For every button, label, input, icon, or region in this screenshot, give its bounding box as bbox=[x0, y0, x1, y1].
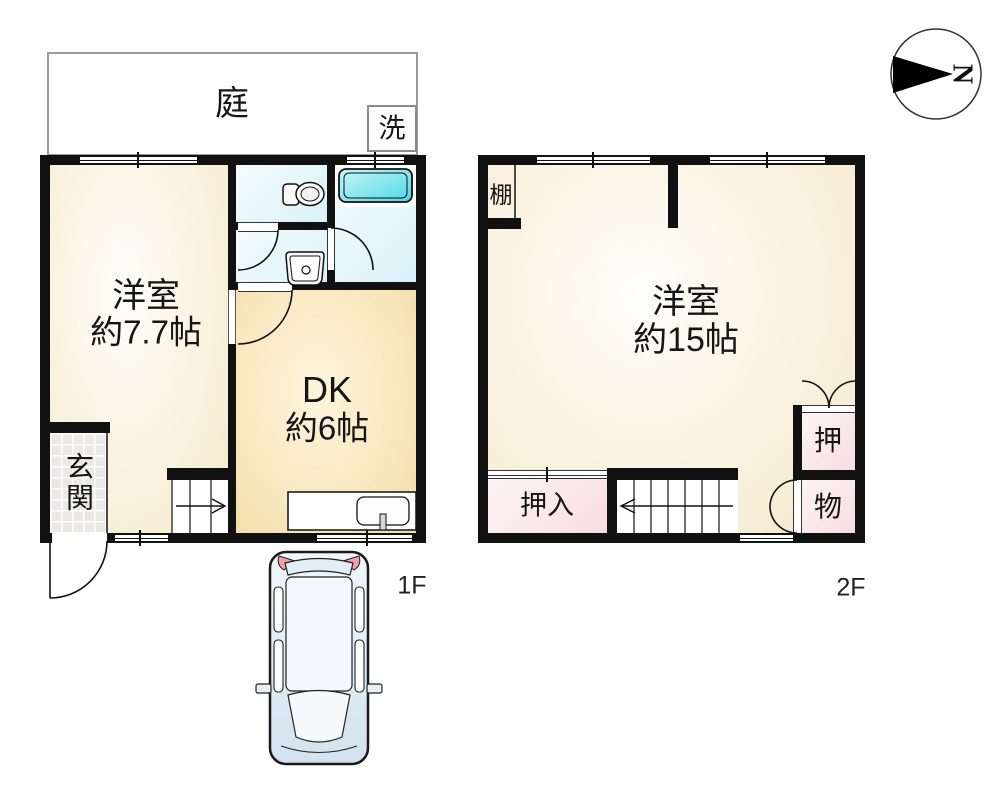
car-roof bbox=[286, 577, 352, 691]
room2f-size-label: 約15帖 bbox=[633, 323, 739, 357]
bathtub-fixture bbox=[339, 169, 412, 202]
compass-icon: N bbox=[891, 29, 981, 119]
floor2-label: 2F bbox=[836, 576, 865, 601]
closet-lower-label: 物 bbox=[814, 493, 842, 521]
toilet-fixture bbox=[283, 183, 324, 206]
entrance-label: 玄関 bbox=[64, 452, 96, 515]
shelf-label: 棚 bbox=[490, 184, 513, 207]
bath-door-arc bbox=[331, 228, 373, 270]
door-arcs-2f bbox=[770, 381, 855, 533]
kitchen-faucet bbox=[380, 514, 386, 530]
washbasin-fixture bbox=[286, 252, 324, 285]
garden-label: 庭 bbox=[215, 87, 249, 121]
floor-plan-canvas: N 庭 洗 洋室 約7.7帖 DK 約6帖 玄関 1F 棚 洋室 約15帖 押入… bbox=[0, 0, 1000, 802]
windshield bbox=[288, 691, 350, 743]
plan-overlay: N bbox=[0, 0, 1000, 802]
side-mirror-left bbox=[256, 684, 271, 693]
closet-upper-door-arc-right bbox=[829, 381, 855, 408]
closet-lower-door-arc-top bbox=[770, 480, 797, 507]
compass-north-letter: N bbox=[947, 64, 978, 84]
closet-lower-door-arc-bottom bbox=[770, 507, 797, 533]
dk-name-label: DK bbox=[302, 372, 352, 408]
dk-size-label: 約6帖 bbox=[285, 412, 369, 445]
room1f-name-label: 洋室 bbox=[112, 279, 180, 313]
closet-upper-label: 押 bbox=[814, 427, 842, 455]
toilet-door-arc bbox=[238, 230, 278, 270]
room1f-size-label: 約7.7帖 bbox=[90, 316, 202, 349]
room2f-name-label: 洋室 bbox=[652, 285, 720, 319]
floor1-label: 1F bbox=[397, 574, 426, 599]
oshiire-label: 押入 bbox=[520, 493, 574, 520]
car-icon bbox=[256, 552, 382, 764]
kitchen-counter bbox=[288, 492, 416, 530]
stairs-2f bbox=[621, 480, 733, 533]
stairs-1f bbox=[172, 480, 225, 533]
laundry-label: 洗 bbox=[379, 116, 406, 143]
entrance-door-arc bbox=[50, 541, 107, 598]
closet-upper-door-arc-left bbox=[802, 381, 829, 408]
dk-door-arc bbox=[238, 290, 292, 344]
side-mirror-right bbox=[367, 684, 382, 693]
